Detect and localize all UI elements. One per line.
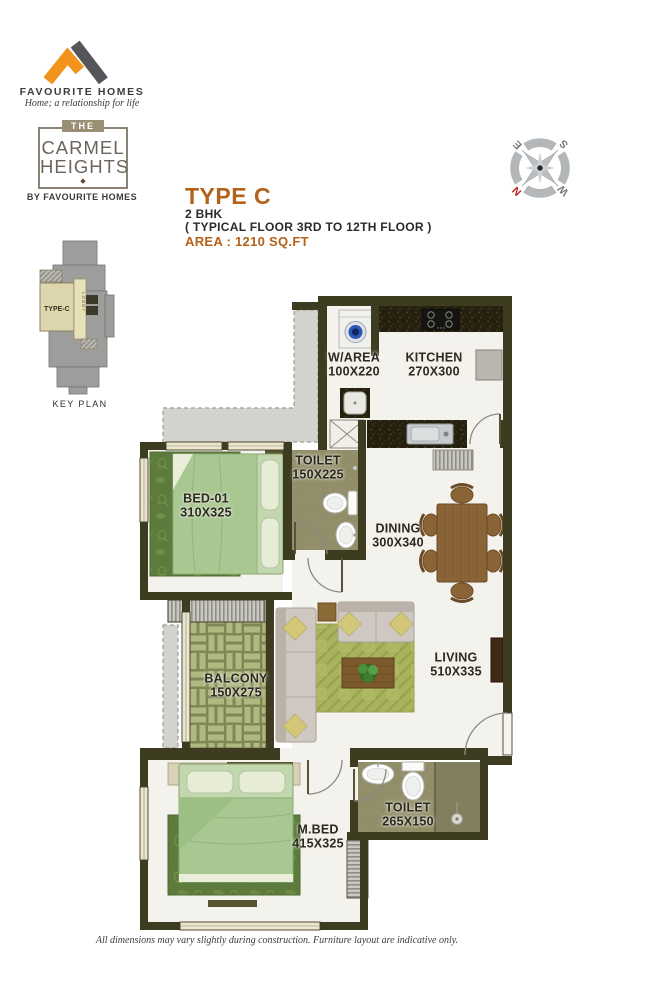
project-logo: THE CARMEL HEIGHTS ◆ — [38, 127, 128, 189]
key-plan-lift-2 — [86, 306, 98, 315]
compass-east-label: E — [511, 138, 525, 152]
side-table-icon — [318, 603, 336, 621]
key-plan-lobby-label: LOBBY — [81, 292, 86, 312]
room-label-dining: DINING300X340 — [372, 522, 423, 551]
key-plan-caption: KEY PLAN — [35, 399, 125, 409]
toilet1-wc-icon — [323, 491, 357, 515]
project-by-line: BY FAVOURITE HOMES — [12, 192, 152, 202]
diamond-icon: ◆ — [40, 178, 126, 185]
mbed-bed-icon — [179, 764, 293, 882]
brand-name: FAVOURITE HOMES — [10, 86, 154, 98]
key-plan-unit-label: TYPE-C — [44, 306, 70, 313]
key-plan-building: TYPE-C LOBBY — [40, 241, 114, 394]
kitchen-sink-icon — [407, 424, 453, 444]
room-label-balcony: BALCONY150X275 — [204, 672, 267, 701]
type-area: AREA : 1210 SQ.FT — [185, 234, 309, 249]
main-door-leaf — [503, 713, 512, 755]
mbed-bench — [208, 900, 257, 907]
disclaimer-text: All dimensions may vary slightly during … — [77, 935, 477, 946]
room-label-kitchen: KITCHEN270X300 — [406, 351, 463, 380]
key-plan-stair-hatch — [81, 339, 97, 349]
kitchen-counter-top — [379, 306, 503, 332]
key-plan: TYPE-C LOBBY — [35, 237, 125, 397]
project-the: THE — [62, 120, 104, 132]
compass-south-label: S — [557, 137, 571, 151]
compass-icon: N E S W — [499, 127, 581, 209]
room-label-living: LIVING510X335 — [430, 651, 481, 680]
stove-icon — [422, 309, 459, 330]
coffee-table-icon — [342, 658, 394, 688]
type-title: TYPE C — [185, 183, 271, 210]
project-name-line2: HEIGHTS — [40, 157, 126, 176]
mbed-furniture — [168, 762, 300, 907]
brochure-page: FAVOURITE HOMES Home; a relationship for… — [0, 0, 656, 1000]
favourite-homes-logo-icon — [44, 38, 110, 86]
type-floor-note: ( TYPICAL FLOOR 3RD TO 12TH FLOOR ) — [185, 220, 432, 234]
fridge-icon — [476, 350, 502, 380]
key-plan-lift-1 — [86, 295, 98, 304]
room-label-bed01: BED-01310X325 — [180, 492, 231, 521]
room-label-toilet-2: TOILET265X150 — [382, 801, 433, 830]
room-label-toilet-1: TOILET150X225 — [292, 454, 343, 483]
key-plan-hatch-block — [40, 270, 62, 282]
warea-sink-icon — [340, 388, 370, 418]
toilet2-wc-icon — [402, 762, 424, 800]
kitchen-threshold — [433, 450, 473, 470]
project-name-line1: CARMEL — [40, 138, 126, 157]
room-label-mbed: M.BED415X325 — [292, 823, 343, 852]
kitchen-sink-counter — [367, 420, 467, 448]
type-bhk: 2 BHK — [185, 207, 223, 221]
tv-unit-icon — [491, 638, 503, 682]
compass-west-label: W — [555, 182, 571, 198]
washing-machine-icon — [339, 310, 372, 348]
room-label-warea: W/AREA100X220 — [328, 351, 380, 380]
brand-tagline: Home; a relationship for life — [10, 98, 154, 109]
toilet1-sink-icon — [336, 522, 357, 548]
